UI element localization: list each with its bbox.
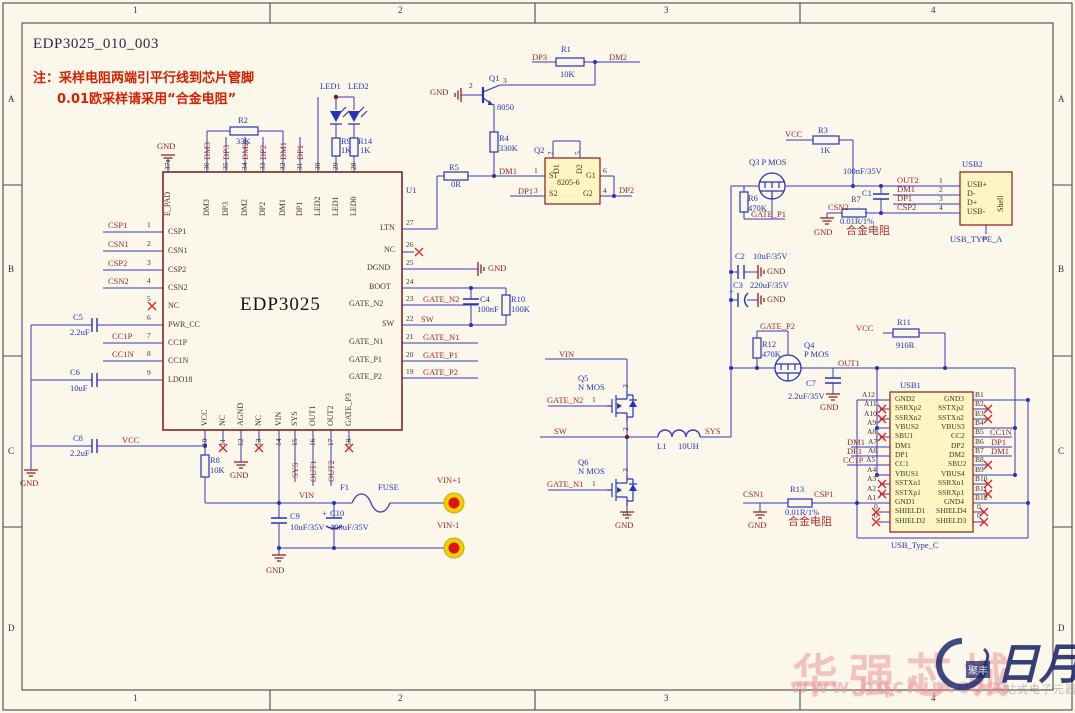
label-b: B [8,265,14,274]
label-a7: A7 [868,438,877,446]
label-dp1: DP1 [296,145,305,160]
label-u1: U1 [406,186,416,195]
label-b7: B7 [975,447,984,455]
label-d+: D+ [967,199,977,207]
label-1k: 1K [360,146,370,155]
label-sw: SW [554,427,567,436]
label-gnd4: GND4 [944,498,964,506]
label-dp1: DP1 [895,451,908,459]
led1-symbol [330,107,349,124]
label-vbus4: VBUS4 [941,470,965,478]
label-32: 32 [279,163,287,171]
label-vin: VIN [299,491,314,500]
label-csp2: CSP2 [108,259,127,268]
label-r3: R3 [818,126,828,135]
label-2-2uf: 2.2uF [70,328,90,337]
label-gnd: GND [820,403,838,412]
label-r4: R4 [499,134,509,143]
label-ldo18: LDO18 [168,376,192,384]
label-17: 17 [327,439,335,447]
label-gnd: GND [615,521,633,530]
label-dm1: DM1 [499,167,517,176]
label-10k: 10K [210,466,225,475]
label-cc1p: CC1P [168,339,187,347]
led2-symbol [348,107,367,124]
label-vcc: VCC [122,436,139,445]
label-3: 3 [622,384,630,388]
label-3: 3 [503,77,507,85]
label-gnd2: GND2 [895,395,915,403]
label-2: 2 [622,511,630,515]
label-text: 合金电阻 [788,516,832,527]
label-b11: B11 [975,485,987,493]
label-220uf-35v: 220uF/35V [750,281,789,290]
label-sstxp2: SSTXp2 [938,404,964,412]
label-r12: R12 [762,340,776,349]
label-gate-p1: GATE_P1 [751,210,786,219]
label-a: A [8,95,15,104]
label-0: 0 [874,503,878,511]
label-470k: 470K [762,350,781,359]
label-sys: SYS [705,427,721,436]
label-c5: C5 [73,313,83,322]
label-0: 0 [977,512,981,520]
label-c10: C10 [330,509,344,518]
label-35: 35 [222,163,230,171]
label-cc2: CC2 [951,432,965,440]
label-sw: SW [421,315,434,324]
label-sstxp1: SSTXp1 [895,489,921,497]
label-4: 4 [939,204,943,212]
label-r11: R11 [897,318,911,327]
label-2: 2 [939,186,943,194]
label-28: 28 [350,163,358,171]
label-csn1: CSN1 [108,240,129,249]
label-cc1n: CC1N [990,428,1012,437]
label-pwr-cc: PWR_CC [168,321,200,329]
label-vin+1: VIN+1 [437,476,461,485]
label-b5: B5 [975,428,984,436]
label-16: 16 [309,439,317,447]
label-dp3: DP3 [222,202,230,216]
label-out2: OUT2 [327,406,335,426]
label-100nf-35v: 100nF/35V [843,167,882,176]
label-c2: C2 [735,252,745,261]
fuse-f1 [352,494,390,512]
label-6: 6 [147,314,151,322]
label-1: 1 [939,177,943,185]
label-vbus1: VBUS1 [895,470,919,478]
watermark-badge: 聚丰 [966,661,990,678]
label-nc: NC [255,415,263,426]
label-gate-n2: GATE_N2 [349,300,383,308]
label-gnd: GND [488,264,506,273]
label-gate-p2: GATE_P2 [760,322,795,331]
label-csn1: CSN1 [743,490,764,499]
label-dm2: DM2 [949,451,965,459]
label-2: 2 [469,82,473,90]
label-a4: A4 [867,466,876,474]
label-d: D- [967,190,975,198]
label-33: 33 [259,163,267,171]
label-8: 8 [147,350,151,358]
label-gnd3: GND3 [944,395,964,403]
label-b12: B12 [975,494,988,502]
mosfet-q5 [607,390,637,422]
label-cc1p: CC1P [843,456,863,465]
label-cc1p: CC1P [112,332,132,341]
label-5: 5 [574,151,582,155]
label-boot: BOOT [369,283,391,291]
label-dgnd: DGND [367,264,390,272]
label-31: 31 [296,163,304,171]
label-10k: 10K [560,70,575,79]
label-dm3: DM3 [203,142,212,160]
label-13: 13 [255,439,263,447]
label-sstxn2: SSTXn2 [938,414,964,422]
label-2: 2 [622,427,630,431]
label-3: 3 [622,468,630,472]
label-+: + [322,509,327,518]
label-sys: SYS [291,411,299,426]
label-4: 4 [147,277,151,285]
label-1k: 1K [820,146,830,155]
label-s2: S2 [549,190,557,198]
label-a11: A11 [864,400,877,408]
label-100nf: 100nF [477,305,499,314]
label-dp2: DP2 [951,442,964,450]
label-20: 20 [406,351,414,359]
label-shield3: SHIELD3 [936,517,966,525]
label-shield4: SHIELD4 [936,507,966,515]
label-dm1: DM1 [279,199,287,216]
label-sw: SW [382,320,394,328]
label-c1: C1 [862,189,872,198]
label-shield1: SHIELD1 [895,507,925,515]
label-7: 7 [147,332,151,340]
label-c6: C6 [70,368,80,377]
label-sbu2: SBU2 [948,460,966,468]
label-gate-n2: GATE_N2 [547,396,583,405]
vin-plus-pad [444,493,464,513]
label-100uf-35v: 100uF/35V [330,523,369,532]
label-usb: USB- [967,208,985,216]
label-ltn: LTN [380,224,395,232]
label-gate-n1: GATE_N1 [349,338,383,346]
label-usb1: USB1 [900,381,921,390]
label-ssrxp2: SSRXp2 [895,404,921,412]
label-usb-type-c: USB_Type_C [891,541,939,550]
label-gate-p1: GATE_P1 [423,351,458,360]
label-cc1n: CC1N [168,357,188,365]
label-shell: Shell [997,196,1005,212]
label-gnd: GND [767,267,785,276]
label-9: 9 [147,369,151,377]
label-r1: R1 [561,45,571,54]
label-dm1: DM1 [279,142,288,160]
label-r7: R7 [851,195,861,204]
label-15: 15 [291,439,299,447]
label-csp1: CSP1 [168,228,186,236]
label-vin: VIN [275,412,283,426]
label-e-pad: E_PAD [164,192,172,216]
label-vin: VIN [559,350,574,359]
label-gate-p2: GATE_P2 [423,368,458,377]
label-dm2: DM2 [241,199,249,216]
label-3: 3 [534,187,538,195]
label-out1: OUT1 [309,460,318,482]
label-vcc: VCC [785,130,802,139]
label-out1: OUT1 [838,359,860,368]
label-led0: LED0 [350,196,358,216]
label-cc1: CC1 [895,460,909,468]
vin-minus-pad [444,538,464,558]
label-24: 24 [406,278,414,286]
label-led1: LED1 [320,82,341,91]
label-sstxn1: SSTXn1 [895,479,921,487]
label-18: 18 [345,439,353,447]
label-14: 14 [275,439,283,447]
label-r10: R10 [511,295,525,304]
label-d: D [8,624,15,633]
label-gnd: GND [157,142,175,151]
label-0r: 0R [451,180,461,189]
label-csn2: CSN2 [828,203,849,212]
label-30: 30 [314,163,322,171]
label-vbus3: VBUS3 [941,423,965,431]
label-b1: B1 [975,391,984,399]
label-r13: R13 [790,485,804,494]
label-c: C [1058,447,1064,456]
label-agnd: AGND [237,403,245,426]
label-dp3: DP3 [532,53,547,62]
label-0: 0 [874,512,878,520]
label-b8: B8 [975,456,984,464]
label-37: 37 [164,163,172,171]
label-dm3: DM3 [203,199,211,216]
label-330k: 330K [499,144,518,153]
label-gate-p1: GATE_P1 [349,356,382,364]
label-csn1: CSN1 [168,247,188,255]
label-2-2uf: 2.2uF [70,449,90,458]
note-line-2: 0.01欧采样请采用“合金电阻” [57,88,236,107]
label-2: 2 [398,6,403,15]
label-sys: SYS [291,462,300,478]
label-shield2: SHIELD2 [895,517,925,525]
label-b9: B9 [975,466,984,474]
label-led1: LED1 [332,196,340,216]
label-out2: OUT2 [327,460,336,482]
label-g1: G1 [586,172,596,180]
label-2-2uf-35v: 2.2uF/35V [788,392,825,401]
label-gnd: GND [748,521,766,530]
label-3: 3 [664,694,669,703]
label-led2: LED2 [314,196,322,216]
label-edp3025: EDP3025 [240,295,321,314]
label-c4: C4 [480,295,490,304]
label-dm1: DM1 [991,447,1009,456]
label-b: B [1058,265,1064,274]
label-2: 2 [147,240,151,248]
label-d1: D1 [553,164,561,174]
label-r6: R6 [748,194,758,203]
label-0: 0 [977,503,981,511]
label-csn2: CSN2 [108,277,129,286]
label-dp1: DP1 [296,202,304,216]
label-csp2: CSP2 [897,203,916,212]
label-10uh: 10UH [678,442,699,451]
label-dm1: DM1 [895,442,911,450]
label-c8: C8 [73,434,83,443]
label-27: 27 [406,219,414,227]
label-gate-p3: GATE_P3 [345,393,353,426]
label-3: 3 [664,6,669,15]
label-a5: A5 [866,456,875,464]
label-+: + [729,287,734,296]
label-nc: NC [168,302,179,310]
label-c9: C9 [290,512,300,521]
label-26: 26 [406,241,414,249]
mosfet-q6 [607,474,637,506]
label-text: 合金电阻 [846,225,890,236]
label-d2: D2 [576,164,584,174]
label-8050: 8050 [497,103,514,112]
label-vin-1: VIN-1 [437,521,459,530]
label-1k: 1K [341,146,351,155]
label-b2: B2 [975,400,984,408]
label-3: 3 [939,195,943,203]
label-6: 6 [603,167,607,175]
label-10uf: 10uF [70,384,87,393]
label-1: 1 [592,480,596,488]
label-dp2: DP2 [259,145,268,160]
label-q3-p-mos: Q3 P MOS [749,158,786,167]
label-ssrxn1: SSRXn1 [938,479,964,487]
sheet-title: EDP3025_010_003 [33,36,159,53]
label-c: C [8,447,14,456]
label-csn2: CSN2 [168,284,188,292]
label-gnd: GND [430,88,448,97]
label-10uf-35v: 10uF/35V [290,523,324,532]
label-usb+: USB+ [967,181,987,189]
label-2: 2 [398,694,403,703]
label-vbus2: VBUS2 [895,423,919,431]
label-a12: A12 [862,391,875,399]
label-gate-n1: GATE_N1 [423,333,459,342]
watermark-tagline: 一站式电子元器件采购 [993,681,1075,697]
label-dp2: DP2 [619,186,634,195]
label-gnd: GND [266,566,284,575]
label-gnd1: GND1 [895,498,915,506]
label-b4: B4 [975,419,984,427]
label-n-mos: N MOS [578,383,605,392]
label-25: 25 [406,259,414,267]
label-sbu1: SBU1 [895,432,913,440]
label-r8: R8 [210,456,220,465]
label-11: 11 [219,439,227,446]
label-a10: A10 [864,410,877,418]
label-out1: OUT1 [309,406,317,426]
label-dp3: DP3 [222,145,231,160]
label-1: 1 [592,396,596,404]
label-a6: A6 [868,447,877,455]
label-ssrxp1: SSRXp1 [938,489,964,497]
label-3: 3 [147,259,151,267]
label-gnd: GND [767,295,785,304]
label-c3: C3 [733,281,743,290]
label-r2: R2 [238,116,248,125]
label-fuse: FUSE [378,483,399,492]
label-dp2: DP2 [259,202,267,216]
label-b10: B10 [975,475,988,483]
label-q2: Q2 [534,146,544,155]
label-led2: LED2 [348,82,369,91]
label-34: 34 [241,163,249,171]
label-1: 1 [133,694,138,703]
label-usb2: USB2 [962,160,983,169]
label-1: 1 [147,221,151,229]
label-a3: A3 [867,475,876,483]
label-8205-6: 8205-6 [557,179,580,187]
label-n-mos: N MOS [578,467,605,476]
label-g2: G2 [583,190,593,198]
label-l1: L1 [657,442,666,451]
label-q1: Q1 [489,74,499,83]
inductor-l1 [658,430,700,437]
label-22: 22 [406,315,414,323]
label-csp1: CSP1 [108,221,127,230]
capacitor-plates [92,194,889,529]
label-gnd: GND [20,479,38,488]
label-23: 23 [406,295,414,303]
label-b3: B3 [975,410,984,418]
label-gate-n2: GATE_N2 [423,295,459,304]
label-a: A [1058,95,1065,104]
label-910r: 910R [896,341,914,350]
label-dm2: DM2 [609,53,627,62]
label-a2: A2 [867,485,876,493]
label-2: 2 [547,151,555,155]
label-csp1: CSP1 [814,490,833,499]
label-csp2: CSP2 [168,266,186,274]
label-10uf-35v: 10uF/35V [753,252,787,261]
label-r5: R5 [449,163,459,172]
label-dp1: DP1 [518,187,533,196]
label-a1: A1 [867,494,876,502]
label-f1: F1 [340,483,349,492]
label-19: 19 [406,368,414,376]
label-gnd: GND [814,228,832,237]
label-36: 36 [203,163,211,171]
label-1: 1 [534,167,538,175]
mosfet-q3 [759,173,785,199]
label-a8: A8 [867,428,876,436]
schematic-page: 12341234ABCDABCDU1EDP3025CSP1CSN1CSP2CSN… [0,0,1075,713]
label-gate-n1: GATE_N1 [547,480,583,489]
label-4: 4 [603,187,607,195]
label-a9: A9 [867,419,876,427]
label-10: 10 [201,439,209,447]
label-c7: C7 [806,379,816,388]
label-usb-type-a: USB_TYPE_A [950,235,1002,244]
label-1: 1 [133,6,138,15]
label-33k: 33K [236,137,251,146]
label-p-mos: P MOS [804,350,829,359]
label-nc: NC [219,415,227,426]
label-cc1n: CC1N [112,350,134,359]
label-vcc: VCC [201,410,209,426]
label-21: 21 [406,333,414,341]
